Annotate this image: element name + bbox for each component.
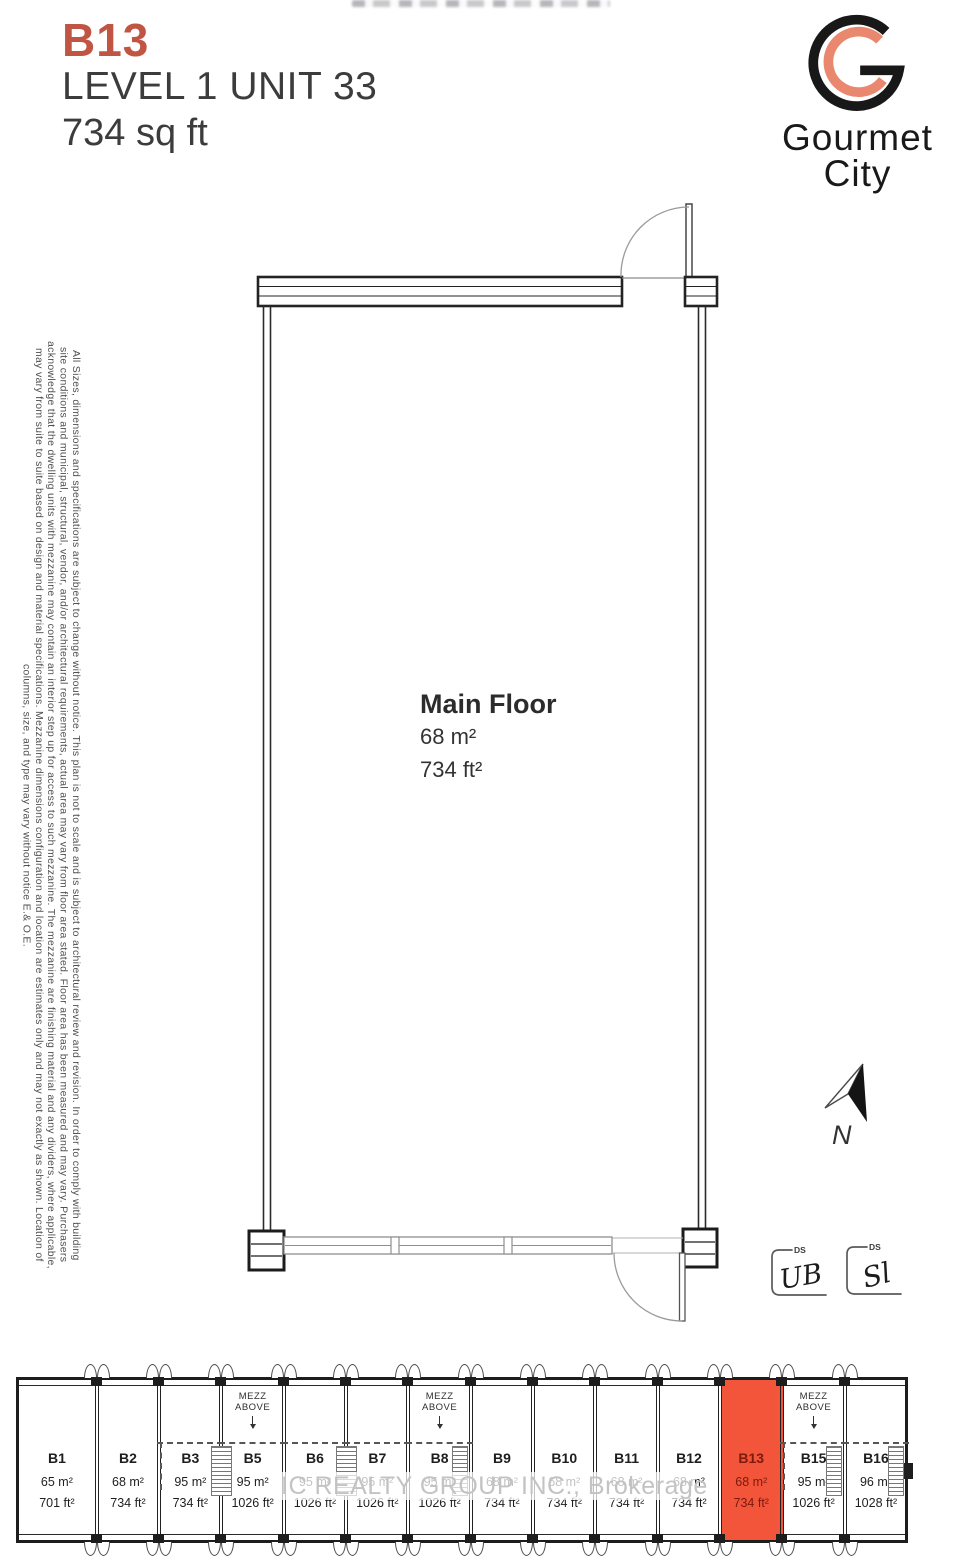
keyplan-unit-B6: B695 m²1026 ft²: [286, 1380, 348, 1540]
door-arc-icon: [271, 1542, 297, 1556]
column-block: [589, 1534, 600, 1543]
initials-box-1[interactable]: DS UB: [768, 1244, 834, 1302]
column-block: [527, 1377, 538, 1386]
door-arc-icon: [520, 1364, 546, 1378]
docusign-tag: DS: [794, 1245, 806, 1255]
door-arc-icon: [84, 1364, 110, 1378]
unit-text-block: B165 m²701 ft²: [19, 1450, 95, 1514]
unit-id: B1: [19, 1450, 95, 1466]
disclaimer-line: site conditions and municipal, structura…: [57, 266, 69, 1344]
room-label-block: Main Floor 68 m² 734 ft²: [420, 688, 557, 786]
door-arc-icon: [208, 1542, 234, 1556]
keyplan-unit-B12: B1268 m²734 ft²: [660, 1380, 722, 1540]
mezzanine-dashed-line: [282, 1442, 348, 1444]
stairs-icon: [211, 1446, 232, 1496]
room-name: Main Floor: [420, 688, 557, 720]
room-area-m2: 68 m²: [420, 720, 557, 753]
building-key-plan: B165 m²701 ft²B268 m²734 ft²B395 m²734 f…: [16, 1377, 908, 1543]
keyplan-unit-B13: B1368 m²734 ft²: [722, 1380, 784, 1540]
column-block: [278, 1377, 289, 1386]
north-label: N: [832, 1120, 852, 1150]
unit-id: B12: [660, 1450, 718, 1466]
door-arc-icon: [707, 1542, 733, 1556]
unit-code-heading: B13: [62, 16, 377, 64]
door-arc-icon: [582, 1364, 608, 1378]
door-arc-icon: [271, 1364, 297, 1378]
keyplan-unit-B7: B795 m²1026 ft²: [348, 1380, 410, 1540]
column-block: [465, 1377, 476, 1386]
column-block: [278, 1534, 289, 1543]
unit-text-block: B1368 m²734 ft²: [722, 1450, 780, 1514]
door-arc-icon: [832, 1364, 858, 1378]
column-block: [714, 1377, 725, 1386]
initials-handwriting: UB: [777, 1258, 824, 1296]
top-door-swing-arc: [621, 207, 689, 277]
mezzanine-dashed-line: [406, 1442, 472, 1444]
top-door-leaf: [686, 204, 692, 277]
column-block: [776, 1377, 787, 1386]
logo-text-line1: Gourmet: [760, 120, 955, 156]
unit-id: B10: [535, 1450, 593, 1466]
door-arc-icon: [832, 1542, 858, 1556]
level-unit-subtitle: LEVEL 1 UNIT 33: [62, 64, 377, 110]
window-mullion: [391, 1237, 399, 1254]
stairs-icon: [888, 1446, 904, 1496]
door-arc-icon: [769, 1542, 795, 1556]
disclaimer-line: may vary from suite to suite based on de…: [32, 266, 44, 1344]
key-plan-unit-row: B165 m²701 ft²B268 m²734 ft²B395 m²734 f…: [19, 1380, 905, 1540]
column-block: [652, 1377, 663, 1386]
door-arc-icon: [458, 1542, 484, 1556]
unit-id: B9: [473, 1450, 531, 1466]
bottom-left-column: [249, 1231, 284, 1270]
column-block: [714, 1534, 725, 1543]
column-block: [91, 1534, 102, 1543]
column-block: [153, 1377, 164, 1386]
door-arc-icon: [645, 1364, 671, 1378]
column-block: [839, 1534, 850, 1543]
top-right-wall-block: [685, 277, 717, 306]
window-mullion: [504, 1237, 512, 1254]
keyplan-unit-B5: MEZZABOVEB595 m²1026 ft²: [223, 1380, 285, 1540]
door-arc-icon: [333, 1364, 359, 1378]
unit-id: B13: [722, 1450, 780, 1466]
docusign-tag: DS: [869, 1242, 881, 1252]
door-arc-icon: [458, 1364, 484, 1378]
column-block: [215, 1534, 226, 1543]
unit-area-ft2: 734 ft²: [99, 1493, 157, 1514]
door-arc-icon: [707, 1364, 733, 1378]
down-arrow-icon: [813, 1416, 814, 1428]
mezzanine-dashed-line: [843, 1442, 909, 1444]
room-area-ft2: 734 ft²: [420, 753, 557, 786]
top-wall-band: [258, 277, 622, 306]
mezzanine-dashed-line: [219, 1442, 285, 1444]
down-arrow-icon: [439, 1416, 440, 1428]
initials-box-2[interactable]: DS Sl: [843, 1241, 909, 1301]
door-arc-icon: [146, 1364, 172, 1378]
column-block: [652, 1534, 663, 1543]
keyplan-unit-B10: B1068 m²734 ft²: [535, 1380, 597, 1540]
mezzanine-dashed-line: [780, 1442, 846, 1444]
unit-area-ft2: 734 ft²: [722, 1493, 780, 1514]
column-block: [340, 1534, 351, 1543]
disclaimer-line: All Sizes, dimensions and specifications…: [70, 266, 82, 1344]
keyplan-unit-B11: B1168 m²734 ft²: [597, 1380, 659, 1540]
door-arc-icon: [333, 1542, 359, 1556]
column-block: [589, 1377, 600, 1386]
column-block: [91, 1377, 102, 1386]
unit-area-m2: 65 m²: [19, 1472, 95, 1493]
stairs-icon: [826, 1446, 842, 1496]
unit-area-ft2: 1026 ft²: [223, 1493, 281, 1514]
column-block: [839, 1377, 850, 1386]
gourmet-city-logo: Gourmet City: [760, 12, 955, 192]
keyplan-unit-B2: B268 m²734 ft²: [99, 1380, 161, 1540]
unit-area-ft2: 1026 ft²: [784, 1493, 842, 1514]
column-block: [402, 1534, 413, 1543]
mezzanine-dashed-line: [157, 1442, 223, 1444]
column-block: [776, 1534, 787, 1543]
area-subtitle: 734 sq ft: [62, 110, 377, 156]
door-arc-icon: [84, 1542, 110, 1556]
bottom-right-column: [683, 1229, 717, 1267]
door-arc-icon: [395, 1542, 421, 1556]
gourmet-city-logo-icon: [804, 12, 912, 120]
unit-id: B2: [99, 1450, 157, 1466]
logo-text-line2: City: [760, 156, 955, 192]
mezz-above-label: MEZZABOVE: [778, 1392, 848, 1428]
door-arc-icon: [582, 1542, 608, 1556]
keyplan-unit-B1: B165 m²701 ft²: [19, 1380, 99, 1540]
mezzanine-dashed-line: [344, 1442, 410, 1444]
unit-id: B11: [597, 1450, 655, 1466]
mezz-above-label: MEZZABOVE: [404, 1392, 474, 1428]
door-arc-icon: [208, 1364, 234, 1378]
column-block: [465, 1534, 476, 1543]
column-block: [527, 1534, 538, 1543]
bottom-door-leaf: [680, 1253, 686, 1321]
column-block: [153, 1534, 164, 1543]
north-arrow-icon: N: [820, 1056, 890, 1151]
keyplan-unit-B8: MEZZABOVEB895 m²1026 ft²: [410, 1380, 472, 1540]
door-arc-icon: [395, 1364, 421, 1378]
mezz-above-label: MEZZABOVE: [217, 1392, 287, 1428]
title-block: B13 LEVEL 1 UNIT 33 734 sq ft: [62, 16, 377, 156]
mezzanine-dashed-line-vertical: [783, 1442, 785, 1490]
disclaimer-line: columns, size, and type may vary without…: [20, 266, 32, 1344]
door-arc-icon: [769, 1364, 795, 1378]
mezzanine-dashed-line-vertical: [160, 1442, 162, 1490]
column-block: [215, 1377, 226, 1386]
unit-area-m2: 68 m²: [99, 1472, 157, 1493]
unit-area-ft2: 734 ft²: [161, 1493, 219, 1514]
column-block: [402, 1377, 413, 1386]
unit-area-ft2: 1028 ft²: [847, 1493, 905, 1514]
keyplan-unit-B9: B968 m²734 ft²: [473, 1380, 535, 1540]
keyplan-unit-B15: MEZZABOVEB1595 m²1026 ft²: [784, 1380, 846, 1540]
door-arc-icon: [520, 1542, 546, 1556]
bottom-door-swing-arc: [614, 1253, 682, 1321]
cropped-header-text-fragment: [352, 0, 610, 7]
unit-area-ft2: 701 ft²: [19, 1493, 95, 1514]
disclaimer-line: acknowledge that the dwelling units with…: [45, 266, 57, 1344]
unit-area-m2: 68 m²: [722, 1472, 780, 1493]
keyplan-unit-B3: B395 m²734 ft²: [161, 1380, 223, 1540]
door-arc-icon: [645, 1542, 671, 1556]
initials-handwriting: Sl: [859, 1256, 894, 1295]
down-arrow-icon: [252, 1416, 253, 1428]
keyplan-unit-B16: B1696 m²1028 ft²: [847, 1380, 905, 1540]
door-arc-icon: [146, 1542, 172, 1556]
column-block: [340, 1377, 351, 1386]
unit-text-block: B268 m²734 ft²: [99, 1450, 157, 1514]
brokerage-watermark: IC REALTY GROUP INC., Brokerage: [281, 1472, 695, 1500]
legal-disclaimer-vertical: All Sizes, dimensions and specifications…: [19, 266, 82, 1344]
